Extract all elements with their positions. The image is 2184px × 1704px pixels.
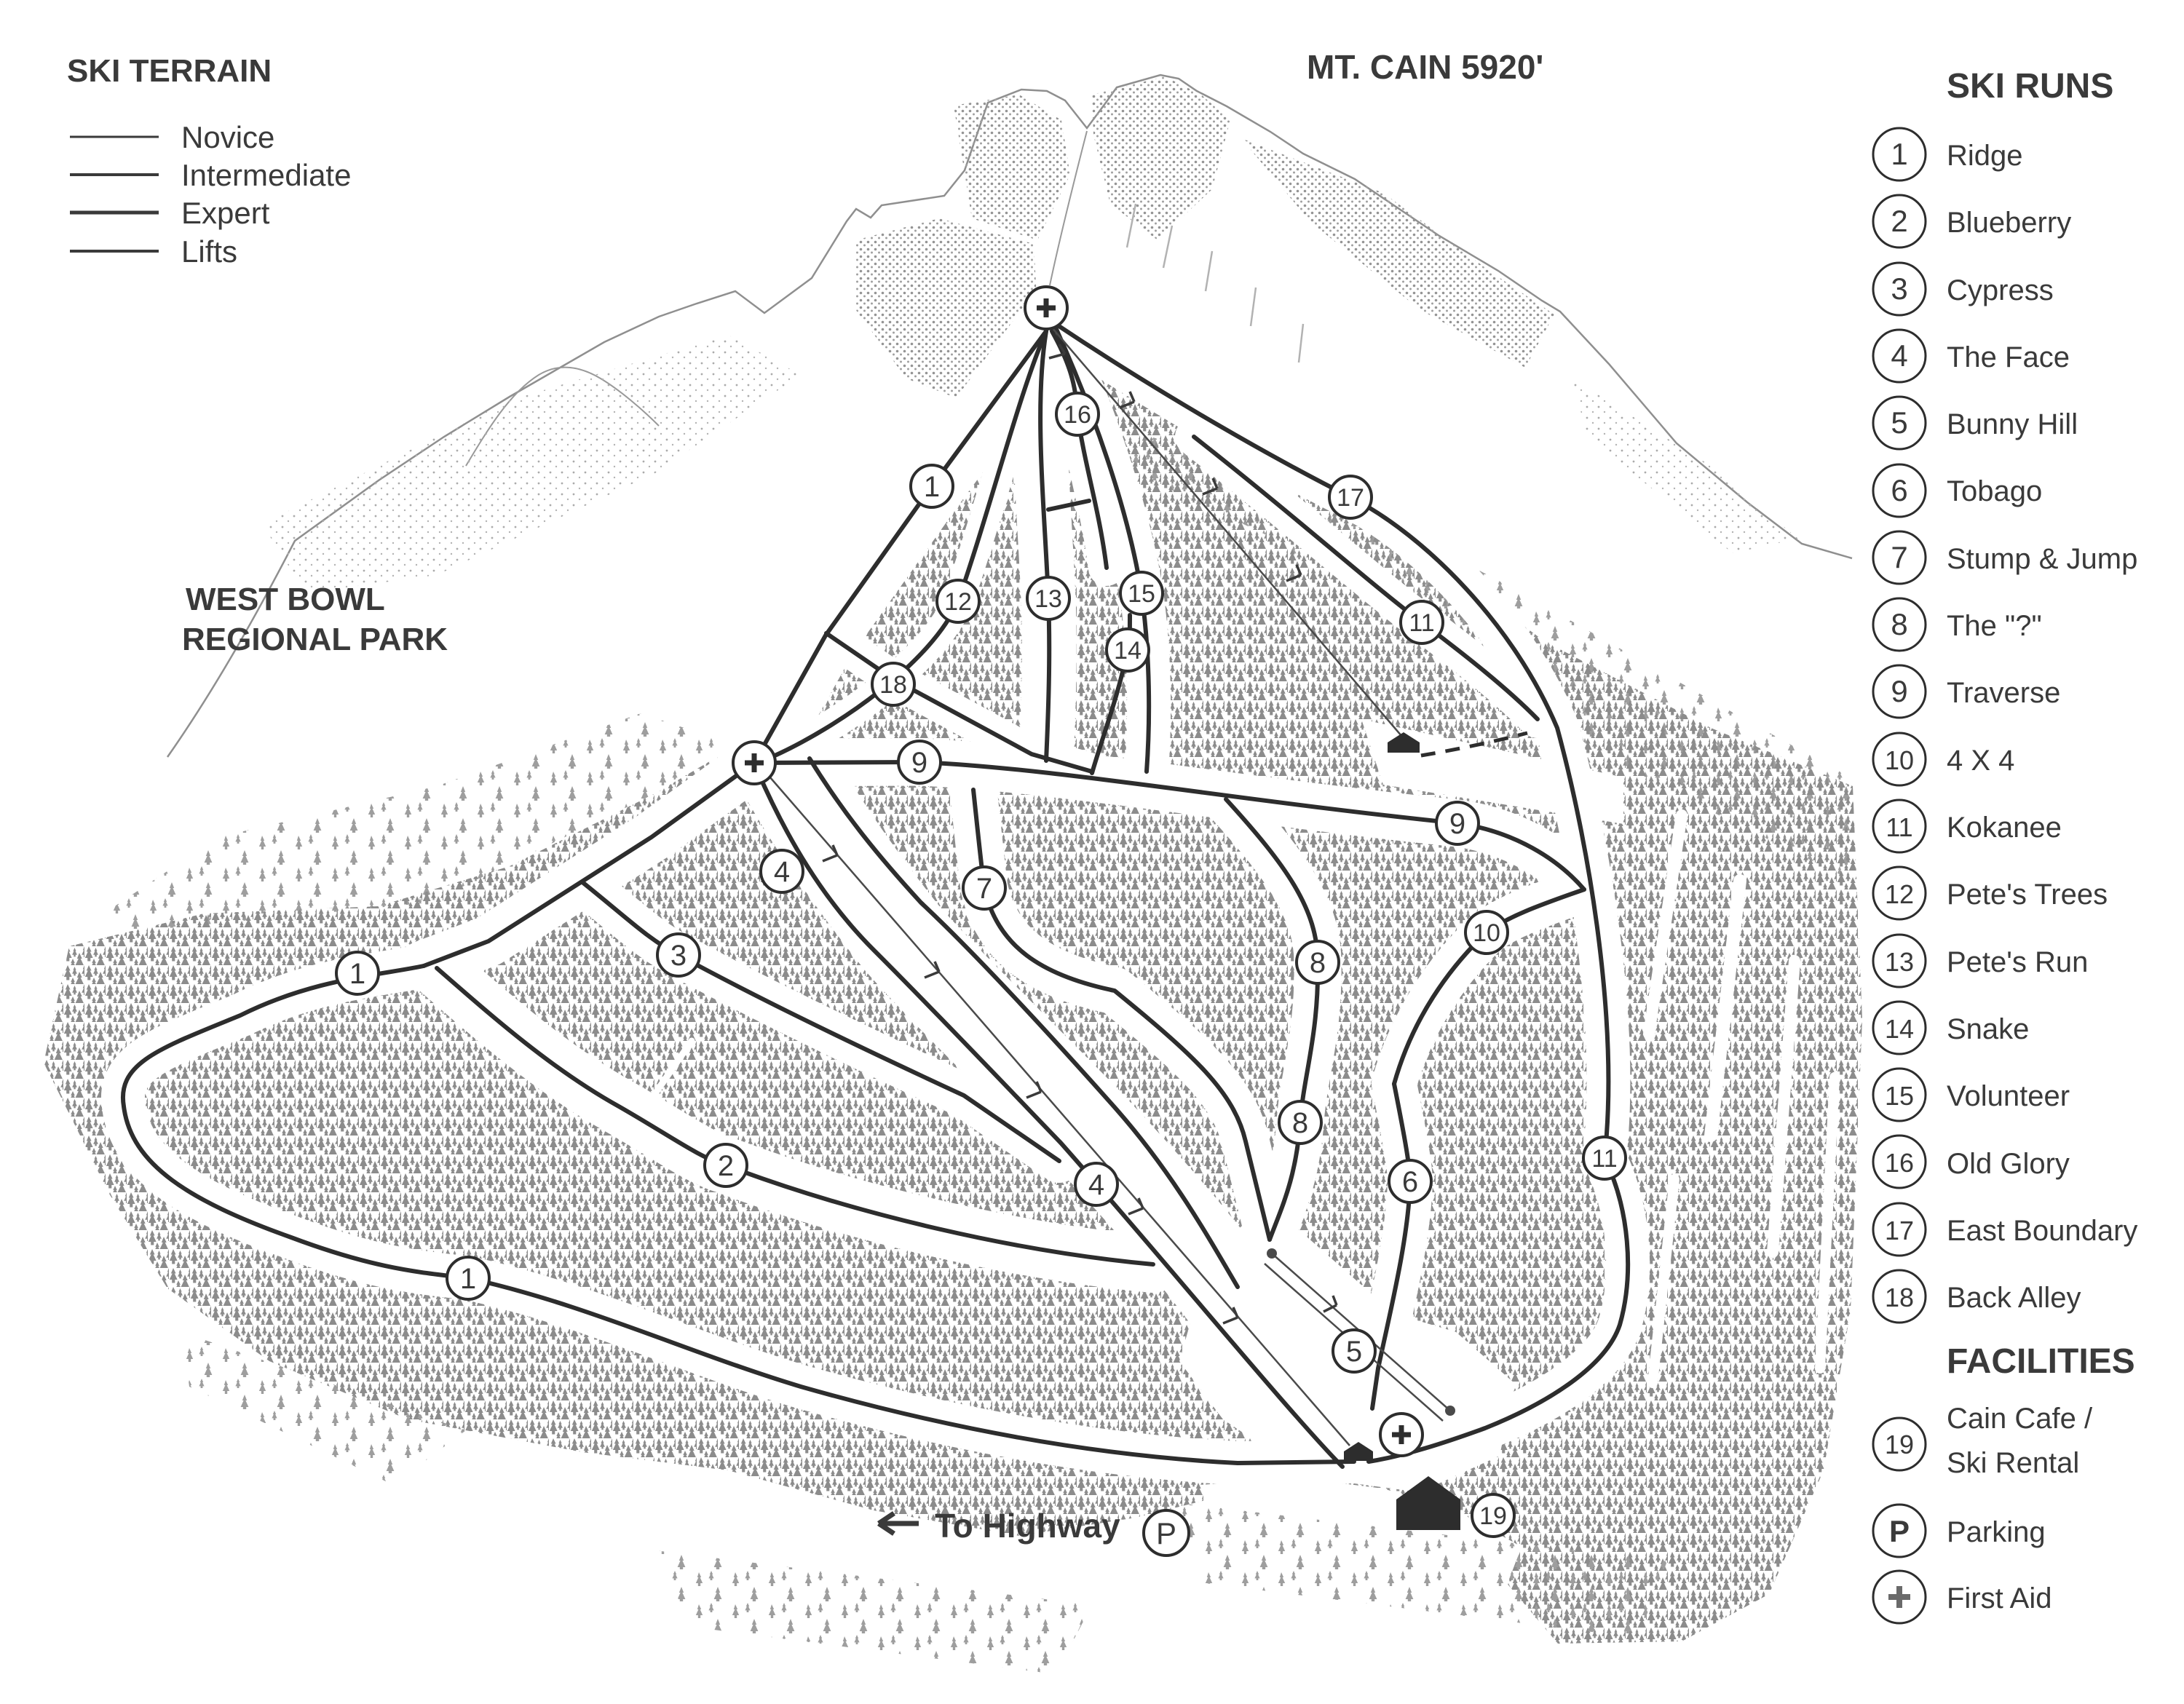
svg-text:10: 10 xyxy=(1473,919,1500,947)
svg-text:8: 8 xyxy=(1292,1107,1308,1139)
svg-text:Cypress: Cypress xyxy=(1947,274,2054,306)
svg-text:Tobago: Tobago xyxy=(1947,475,2042,507)
svg-text:11: 11 xyxy=(1886,812,1912,842)
svg-text:Old Glory: Old Glory xyxy=(1947,1148,2070,1180)
svg-text:SKI TERRAIN: SKI TERRAIN xyxy=(67,53,272,89)
svg-text:Traverse: Traverse xyxy=(1947,677,2060,709)
svg-text:FACILITIES: FACILITIES xyxy=(1947,1342,2135,1381)
svg-text:3: 3 xyxy=(670,940,687,972)
svg-text:5: 5 xyxy=(1346,1336,1362,1368)
svg-text:Bunny Hill: Bunny Hill xyxy=(1947,408,2078,440)
svg-text:East Boundary: East Boundary xyxy=(1947,1215,2137,1247)
svg-text:11: 11 xyxy=(1591,1145,1617,1173)
svg-text:13: 13 xyxy=(1034,585,1062,613)
svg-text:2: 2 xyxy=(1891,204,1907,238)
svg-text:13: 13 xyxy=(1885,947,1914,977)
svg-text:14: 14 xyxy=(1114,637,1142,665)
svg-text:7: 7 xyxy=(976,873,992,905)
svg-text:Pete's Trees: Pete's Trees xyxy=(1947,879,2108,911)
svg-text:4: 4 xyxy=(1088,1169,1104,1201)
svg-text:5: 5 xyxy=(1891,405,1907,440)
svg-text:P: P xyxy=(1156,1516,1176,1550)
svg-text:The Face: The Face xyxy=(1947,341,2070,373)
svg-text:16: 16 xyxy=(1064,401,1091,429)
svg-text:12: 12 xyxy=(1885,879,1914,909)
svg-text:14: 14 xyxy=(1885,1014,1914,1044)
svg-text:6: 6 xyxy=(1891,473,1907,507)
svg-text:15: 15 xyxy=(1885,1081,1914,1111)
svg-text:Pete's Run: Pete's Run xyxy=(1947,946,2088,978)
svg-text:16: 16 xyxy=(1885,1148,1914,1178)
svg-text:Snake: Snake xyxy=(1947,1013,2029,1045)
svg-text:12: 12 xyxy=(944,588,972,616)
svg-text:17: 17 xyxy=(1337,484,1364,512)
svg-text:17: 17 xyxy=(1885,1216,1914,1245)
svg-text:18: 18 xyxy=(879,671,907,699)
svg-text:REGIONAL PARK: REGIONAL PARK xyxy=(182,622,448,657)
svg-text:Kokanee: Kokanee xyxy=(1947,812,2062,844)
svg-text:To Highway: To Highway xyxy=(935,1507,1120,1545)
svg-text:19: 19 xyxy=(1885,1430,1914,1459)
svg-text:3: 3 xyxy=(1891,272,1907,306)
svg-text:18: 18 xyxy=(1885,1283,1914,1312)
svg-text:WEST BOWL: WEST BOWL xyxy=(186,582,385,617)
svg-text:1: 1 xyxy=(460,1263,476,1295)
svg-text:The "?": The "?" xyxy=(1947,610,2042,642)
svg-text:1: 1 xyxy=(349,958,365,990)
svg-text:15: 15 xyxy=(1128,580,1155,608)
svg-text:4: 4 xyxy=(1891,338,1907,373)
svg-text:Back Alley: Back Alley xyxy=(1947,1282,2081,1314)
svg-text:2: 2 xyxy=(718,1150,734,1182)
svg-text:Novice: Novice xyxy=(181,120,274,154)
svg-text:Ridge: Ridge xyxy=(1947,140,2023,172)
svg-text:1: 1 xyxy=(1891,137,1907,171)
svg-text:First Aid: First Aid xyxy=(1947,1582,2052,1614)
svg-text:9: 9 xyxy=(1891,674,1907,708)
svg-text:Volunteer: Volunteer xyxy=(1947,1080,2070,1112)
svg-text:SKI RUNS: SKI RUNS xyxy=(1947,67,2113,106)
svg-text:8: 8 xyxy=(1310,947,1326,979)
svg-text:9: 9 xyxy=(911,747,927,779)
svg-text:8: 8 xyxy=(1891,607,1907,641)
svg-text:Cain Cafe /: Cain Cafe / xyxy=(1947,1403,2093,1435)
svg-text:Ski Rental: Ski Rental xyxy=(1947,1447,2079,1479)
svg-text:10: 10 xyxy=(1885,745,1914,775)
svg-text:Intermediate: Intermediate xyxy=(181,158,351,192)
svg-text:9: 9 xyxy=(1449,808,1465,840)
svg-text:Blueberry: Blueberry xyxy=(1947,207,2071,239)
svg-text:MT. CAIN 5920': MT. CAIN 5920' xyxy=(1307,48,1543,86)
svg-text:6: 6 xyxy=(1402,1166,1418,1198)
svg-text:P: P xyxy=(1889,1514,1910,1548)
svg-text:Lifts: Lifts xyxy=(181,234,237,269)
svg-text:4: 4 xyxy=(774,856,790,888)
svg-text:7: 7 xyxy=(1891,540,1907,574)
svg-text:19: 19 xyxy=(1479,1502,1507,1530)
svg-text:11: 11 xyxy=(1409,609,1434,637)
svg-text:Parking: Parking xyxy=(1947,1516,2046,1548)
svg-text:1: 1 xyxy=(924,471,940,503)
svg-text:Stump & Jump: Stump & Jump xyxy=(1947,543,2137,575)
svg-text:Expert: Expert xyxy=(181,196,270,230)
svg-text:4 X 4: 4 X 4 xyxy=(1947,745,2014,777)
